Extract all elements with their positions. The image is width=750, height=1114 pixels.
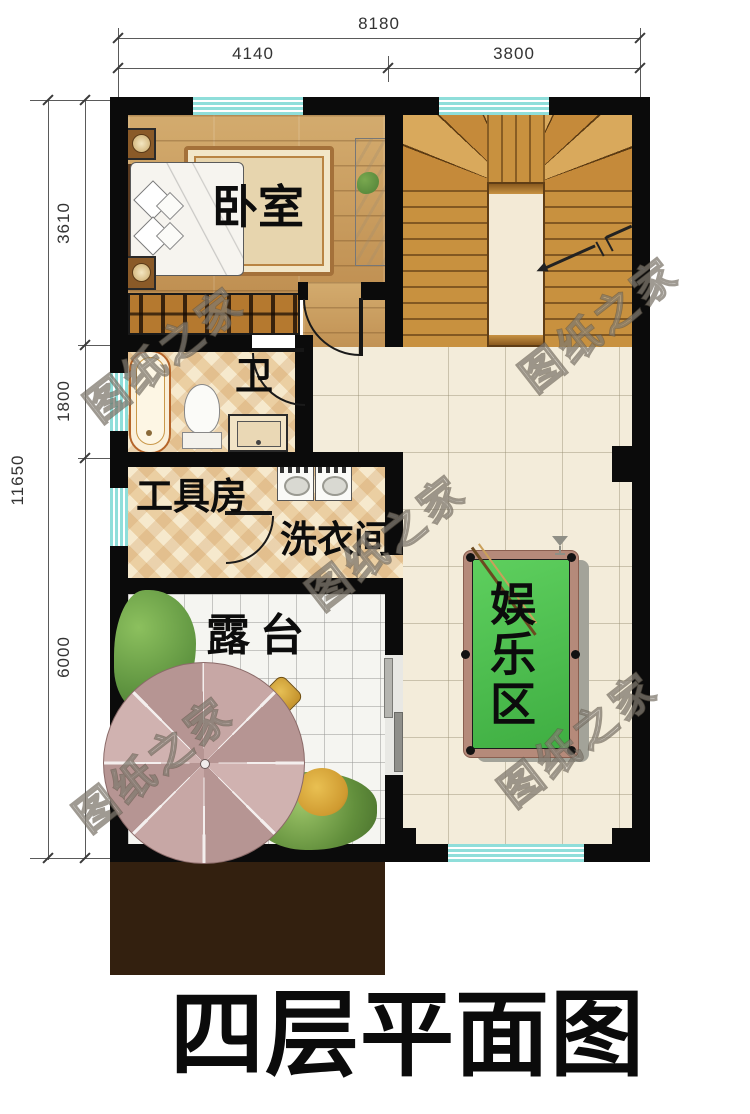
stair-flight-left xyxy=(403,190,487,347)
terrace-label: 露台 xyxy=(206,614,314,658)
window xyxy=(192,97,304,115)
wall-segment xyxy=(385,97,403,347)
wall-segment xyxy=(632,97,650,862)
toilet-bowl xyxy=(184,384,220,434)
door-arc-bedroom xyxy=(303,298,361,356)
nightstand xyxy=(126,128,156,160)
dim-label-seg-3610: 3610 xyxy=(54,193,74,253)
lower-roof-block xyxy=(110,862,385,975)
wall-segment xyxy=(385,775,403,844)
wall-segment xyxy=(385,594,403,655)
pool-pocket xyxy=(571,650,580,659)
table-lamp xyxy=(132,134,151,153)
dim-label-seg-6000: 6000 xyxy=(54,627,74,687)
sliding-door xyxy=(385,655,403,775)
hall-floor xyxy=(313,347,403,452)
dim-line-left-total xyxy=(48,100,49,860)
dim-line-top-segments xyxy=(118,68,640,69)
floor-plan-page: 8180 4140 3800 11650 3610 1800 6000 xyxy=(0,0,750,1114)
dim-label-seg-4140: 4140 xyxy=(213,44,293,64)
wall-segment xyxy=(361,282,403,300)
washing-machine xyxy=(315,464,352,501)
dim-extension-line xyxy=(30,858,110,859)
wall-segment xyxy=(110,452,295,467)
pool-pocket xyxy=(567,553,576,562)
window xyxy=(110,487,128,547)
stair-void-cap-top xyxy=(489,184,543,194)
arrow-segment xyxy=(605,225,632,239)
wall-pillar xyxy=(612,446,632,482)
pool-pocket xyxy=(461,650,470,659)
wall-segment xyxy=(110,97,128,372)
pool-pocket xyxy=(466,746,475,755)
window xyxy=(438,97,550,115)
sliding-door-panel xyxy=(394,712,403,772)
dim-label-seg-1800: 1800 xyxy=(54,371,74,431)
dim-label-seg-3800: 3800 xyxy=(474,44,554,64)
floor-plan-title: 四层平面图 xyxy=(170,986,645,1085)
wine-glass-stem xyxy=(559,546,561,553)
table-lamp xyxy=(132,263,151,282)
arrow-break xyxy=(595,241,604,256)
bathroom-label: 卫 xyxy=(235,358,273,396)
entertainment-label: 娱乐区 xyxy=(487,580,533,730)
sink-vanity xyxy=(228,414,288,452)
dim-extension-line xyxy=(30,100,110,101)
pool-pocket xyxy=(466,553,475,562)
dim-line-top-total xyxy=(118,38,640,39)
dim-label-total-height: 11650 xyxy=(8,448,28,512)
washer-door xyxy=(322,476,348,496)
sink-faucet xyxy=(256,440,261,445)
window xyxy=(447,844,585,862)
toolroom-label: 工具房 xyxy=(136,478,247,515)
washer-door xyxy=(284,476,310,496)
wine-glass-icon xyxy=(552,536,568,546)
bathtub-drain xyxy=(146,430,152,436)
sliding-door-panel xyxy=(384,658,393,718)
washer-controls xyxy=(280,467,310,473)
bedroom-wardrobe xyxy=(355,138,387,266)
wall-segment xyxy=(295,452,403,467)
washing-machine xyxy=(277,464,314,501)
bedroom-label: 卧室 xyxy=(212,184,304,230)
wall-pillar xyxy=(612,828,632,844)
stair-top-landing xyxy=(487,115,545,185)
nightstand xyxy=(126,256,156,290)
arrow-segment xyxy=(541,245,595,271)
dim-label-total-width: 8180 xyxy=(339,14,419,34)
wall-segment xyxy=(583,844,650,862)
wall-segment xyxy=(400,844,447,862)
wine-glass-base xyxy=(555,553,565,555)
door-arc-toolroom xyxy=(225,515,274,564)
toilet-tank xyxy=(182,432,222,449)
dim-line-left-segments xyxy=(85,100,86,858)
washer-controls xyxy=(318,467,348,473)
wall-segment xyxy=(302,97,438,115)
